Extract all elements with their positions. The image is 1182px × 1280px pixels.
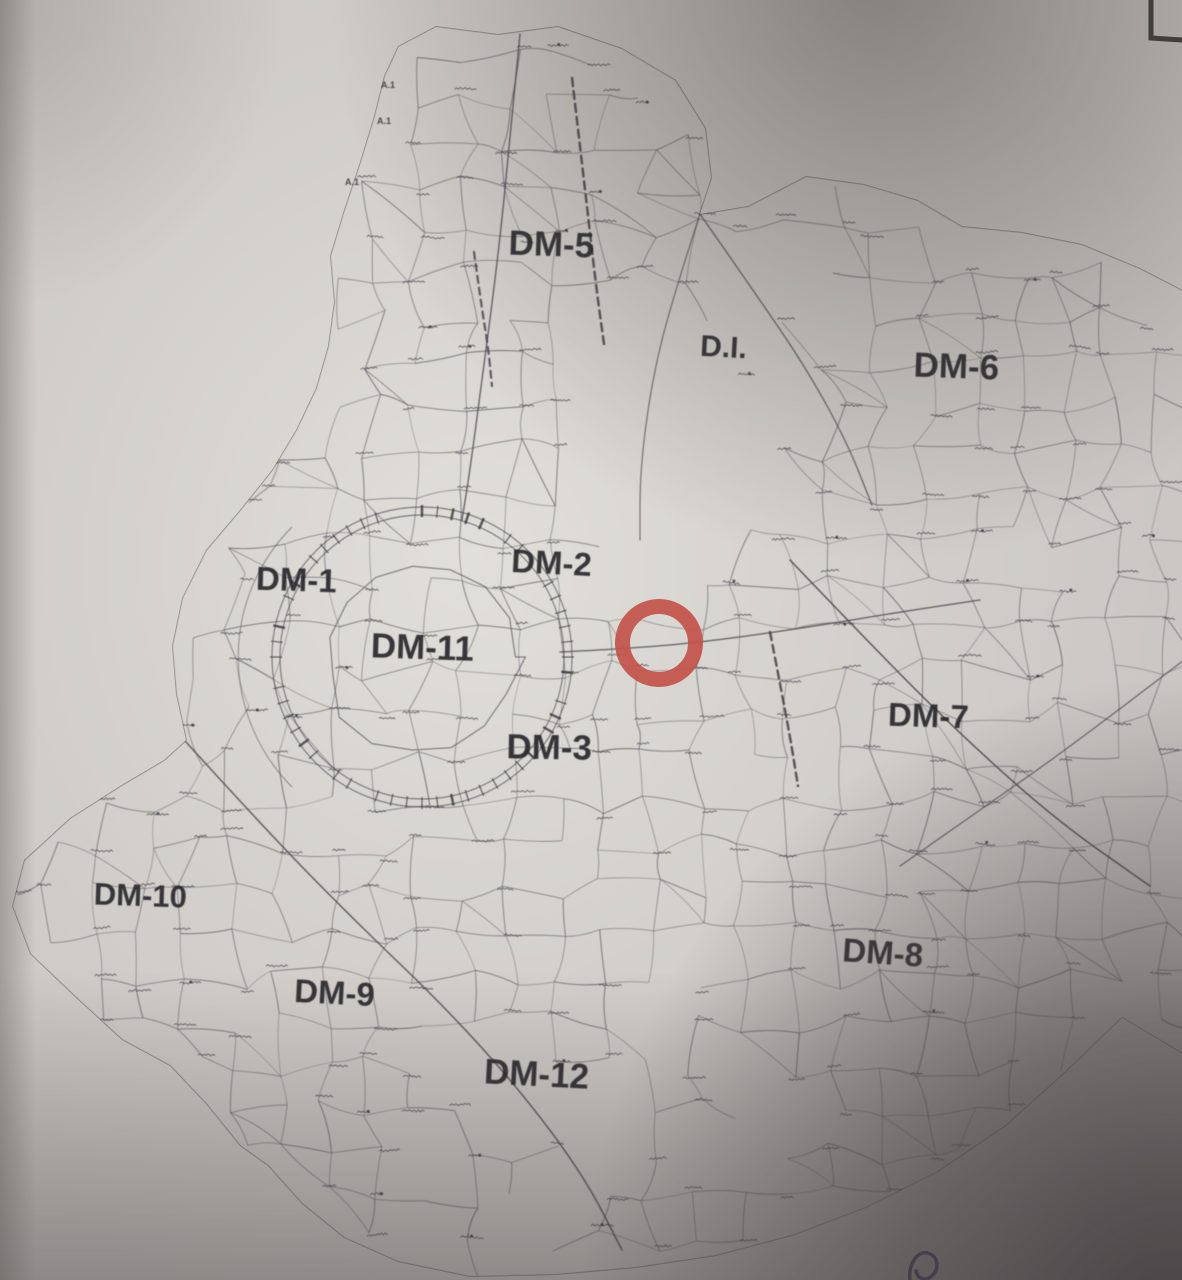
zone-map: DM-5D.I.DM-6DM-1DM-2DM-11DM-7DM-3DM-10DM… (0, 0, 1182, 1280)
scanned-map-photo: DM-5D.I.DM-6DM-1DM-2DM-11DM-7DM-3DM-10DM… (0, 0, 1182, 1280)
photo-shadows (0, 0, 1182, 1280)
